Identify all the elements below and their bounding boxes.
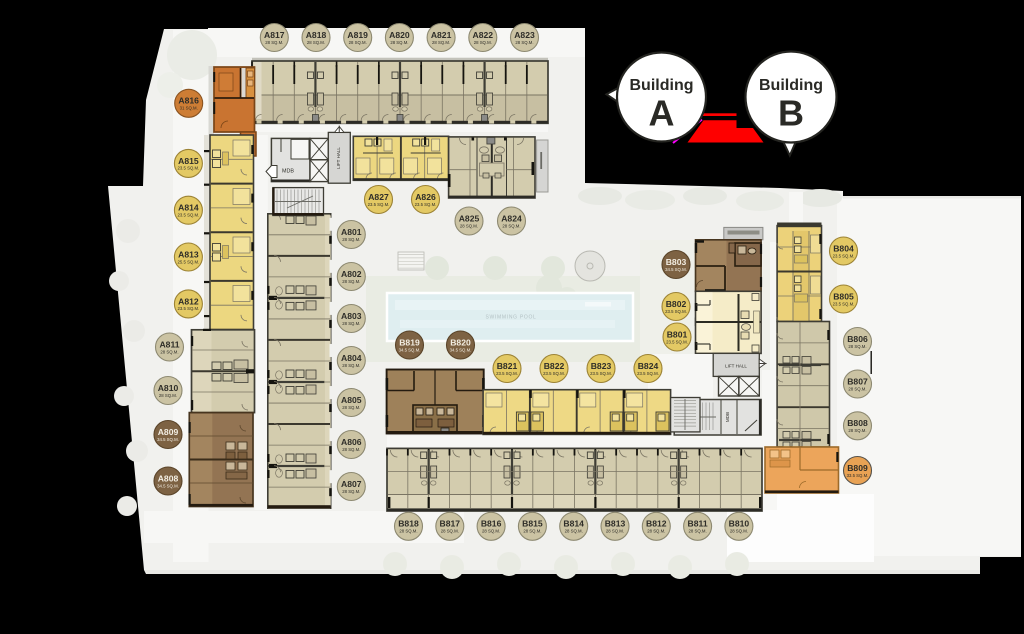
svg-text:23.5 SQ.M.: 23.5 SQ.M. (666, 339, 688, 344)
svg-text:A819: A819 (347, 30, 368, 40)
svg-text:B817: B817 (440, 519, 461, 529)
svg-text:A804: A804 (341, 353, 362, 363)
svg-text:B824: B824 (638, 361, 659, 371)
svg-text:23.5 SQ.M.: 23.5 SQ.M. (665, 309, 687, 314)
svg-text:B803: B803 (666, 257, 687, 267)
svg-text:B822: B822 (544, 361, 565, 371)
svg-text:28 SQ.M.: 28 SQ.M. (265, 40, 283, 45)
svg-text:A802: A802 (341, 269, 362, 279)
svg-text:28 SQ.M.: 28 SQ.M. (432, 40, 450, 45)
svg-text:28 SQ.M.: 28 SQ.M. (342, 447, 360, 452)
svg-text:34.5 SQ.M.: 34.5 SQ.M. (450, 347, 472, 352)
svg-text:B802: B802 (666, 299, 687, 309)
svg-text:28 SQ.M.: 28 SQ.M. (342, 489, 360, 494)
svg-text:23.5 SQ.M.: 23.5 SQ.M. (178, 213, 200, 218)
svg-text:28 SQ.M.: 28 SQ.M. (390, 40, 408, 45)
svg-text:A823: A823 (514, 30, 535, 40)
svg-text:A814: A814 (178, 203, 199, 213)
svg-text:LIFT HALL: LIFT HALL (725, 364, 747, 369)
svg-text:A807: A807 (341, 479, 362, 489)
svg-text:28 SQ.M.: 28 SQ.M. (565, 529, 583, 534)
svg-text:B805: B805 (833, 291, 854, 301)
svg-text:B823: B823 (591, 361, 612, 371)
svg-text:B818: B818 (398, 519, 419, 529)
svg-text:A811: A811 (159, 339, 179, 349)
svg-text:28 SQ.M.: 28 SQ.M. (460, 223, 478, 228)
svg-text:A805: A805 (341, 395, 362, 405)
svg-text:B812: B812 (646, 519, 667, 529)
svg-text:B821: B821 (497, 361, 518, 371)
svg-text:A810: A810 (158, 383, 179, 393)
svg-text:34.5 SQ.M.: 34.5 SQ.M. (157, 437, 179, 442)
svg-text:B801: B801 (667, 329, 688, 339)
svg-text:B813: B813 (605, 519, 626, 529)
svg-text:A813: A813 (178, 249, 199, 259)
svg-text:28 SQ.M.: 28 SQ.M. (441, 529, 459, 534)
svg-text:23.5 SQ.M.: 23.5 SQ.M. (178, 306, 200, 311)
svg-text:MDB: MDB (282, 169, 294, 175)
svg-text:28 SQ.M.: 28 SQ.M. (349, 40, 367, 45)
svg-text:A: A (649, 93, 675, 134)
svg-text:28 SQ.M.: 28 SQ.M. (482, 529, 500, 534)
svg-text:23.5 SQ.M.: 23.5 SQ.M. (415, 202, 437, 207)
svg-text:23.5 SQ.M.: 23.5 SQ.M. (496, 371, 518, 376)
svg-text:28 SQ.M.: 28 SQ.M. (399, 529, 417, 534)
svg-text:MDB: MDB (725, 412, 730, 422)
svg-text:A817: A817 (264, 30, 285, 40)
svg-text:B811: B811 (688, 519, 708, 529)
svg-text:28 SQ.M.: 28 SQ.M. (502, 223, 520, 228)
svg-text:28 SQ.M.: 28 SQ.M. (342, 279, 360, 284)
svg-text:28 SQ.M.: 28 SQ.M. (848, 428, 866, 433)
svg-text:28 SQ.M.: 28 SQ.M. (515, 40, 533, 45)
svg-text:Building: Building (630, 77, 694, 94)
svg-text:A816: A816 (178, 96, 199, 106)
svg-text:A815: A815 (178, 156, 199, 166)
svg-text:28 SQ.M.: 28 SQ.M. (848, 386, 866, 391)
svg-text:A818: A818 (306, 30, 327, 40)
svg-text:B: B (778, 93, 804, 134)
svg-text:28 SQ.M.: 28 SQ.M. (342, 405, 360, 410)
svg-text:A821: A821 (431, 30, 452, 40)
svg-text:A809: A809 (158, 427, 179, 437)
svg-text:B814: B814 (563, 519, 584, 529)
svg-text:28 SQ.M.: 28 SQ.M. (342, 363, 360, 368)
svg-text:23.5 SQ.M.: 23.5 SQ.M. (368, 202, 390, 207)
svg-text:31 SQ.M.: 31 SQ.M. (180, 106, 198, 111)
svg-text:A812: A812 (178, 296, 199, 306)
svg-text:A820: A820 (389, 30, 410, 40)
svg-text:A801: A801 (341, 227, 362, 237)
svg-text:34.5 SQ.M.: 34.5 SQ.M. (665, 267, 687, 272)
svg-text:28 SQ.M.: 28 SQ.M. (160, 349, 178, 354)
svg-text:B819: B819 (399, 337, 420, 347)
svg-text:B810: B810 (729, 519, 750, 529)
svg-text:B816: B816 (481, 519, 502, 529)
svg-text:28 SQ.M.: 28 SQ.M. (159, 393, 177, 398)
svg-text:28 SQ.M.: 28 SQ.M. (647, 529, 665, 534)
svg-text:34.5 SQ.M.: 34.5 SQ.M. (399, 347, 421, 352)
svg-text:25.5 SQ.M.: 25.5 SQ.M. (178, 259, 200, 264)
svg-text:LIFT HALL: LIFT HALL (336, 147, 341, 169)
svg-text:B815: B815 (522, 519, 543, 529)
svg-text:28 SQ.M.: 28 SQ.M. (342, 321, 360, 326)
svg-text:B820: B820 (450, 337, 471, 347)
svg-text:23.5 SQ.M.: 23.5 SQ.M. (833, 301, 855, 306)
svg-text:33.5 SQ.M.: 33.5 SQ.M. (847, 473, 869, 478)
svg-text:B808: B808 (847, 418, 868, 428)
svg-text:28 SQ.M.: 28 SQ.M. (606, 529, 624, 534)
svg-text:28 SQ.M.: 28 SQ.M. (848, 344, 866, 349)
svg-text:23.5 SQ.M.: 23.5 SQ.M. (590, 371, 612, 376)
svg-text:28 SQ.M.: 28 SQ.M. (474, 40, 492, 45)
svg-text:A825: A825 (459, 213, 480, 223)
svg-text:34.5 SQ.M.: 34.5 SQ.M. (157, 483, 179, 488)
svg-text:28 SQ.M.: 28 SQ.M. (689, 529, 707, 534)
svg-text:28 SQ.M.: 28 SQ.M. (342, 237, 360, 242)
svg-text:B807: B807 (847, 376, 868, 386)
svg-text:23.5 SQ.M.: 23.5 SQ.M. (833, 253, 855, 258)
svg-text:B804: B804 (833, 243, 854, 253)
svg-text:A822: A822 (473, 30, 494, 40)
svg-text:A808: A808 (158, 473, 179, 483)
svg-text:23.5 SQ.M.: 23.5 SQ.M. (178, 166, 200, 171)
svg-text:A806: A806 (341, 437, 362, 447)
svg-text:23.5 SQ.M.: 23.5 SQ.M. (543, 371, 565, 376)
svg-text:B806: B806 (847, 334, 868, 344)
svg-text:28 SQ.M.: 28 SQ.M. (307, 40, 325, 45)
svg-text:B809: B809 (847, 463, 868, 473)
svg-text:28 SQ.M.: 28 SQ.M. (523, 529, 541, 534)
svg-text:A826: A826 (415, 192, 436, 202)
svg-text:A824: A824 (501, 213, 522, 223)
svg-text:A803: A803 (341, 311, 362, 321)
svg-text:28 SQ.M.: 28 SQ.M. (730, 529, 748, 534)
svg-text:SWIMMING POOL: SWIMMING POOL (485, 315, 536, 321)
svg-text:23.5 SQ.M.: 23.5 SQ.M. (637, 371, 659, 376)
svg-text:Building: Building (759, 77, 823, 94)
svg-text:A827: A827 (368, 192, 389, 202)
